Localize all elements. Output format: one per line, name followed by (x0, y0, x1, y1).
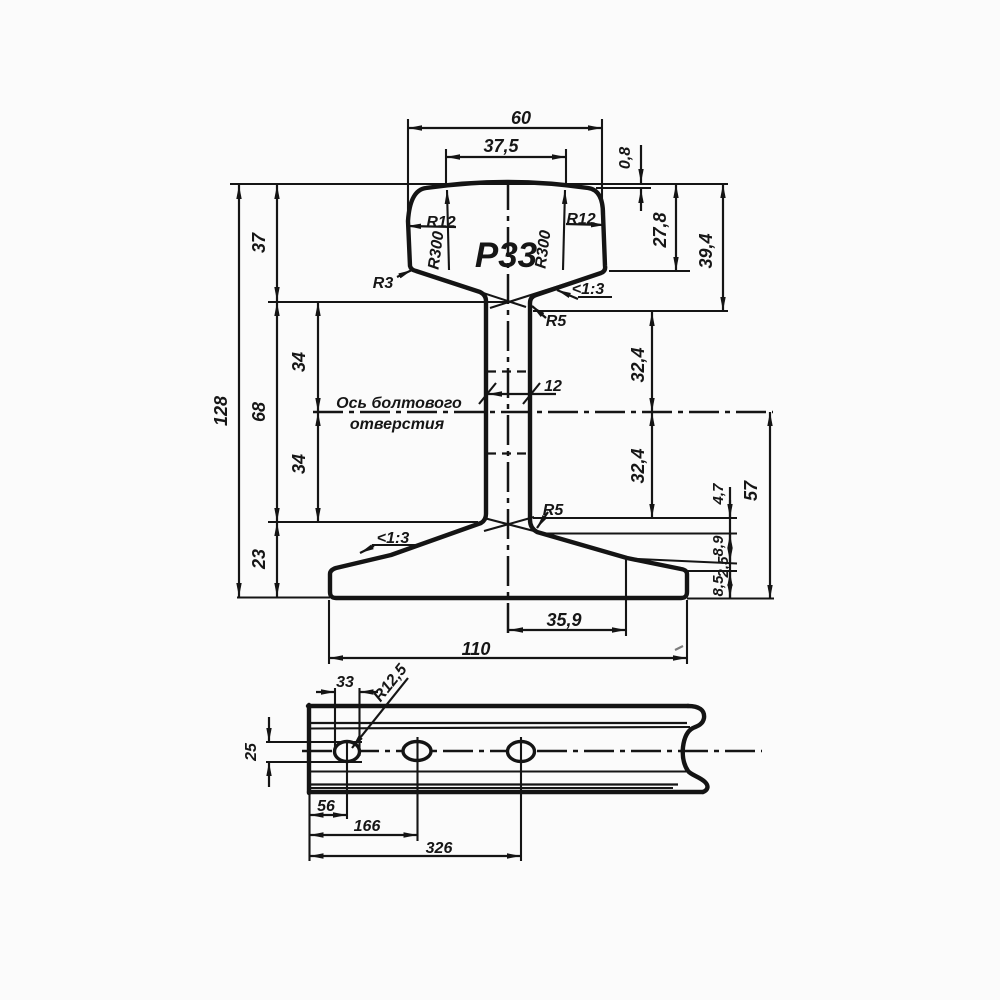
svg-text:37: 37 (249, 232, 269, 253)
svg-text:0,8: 0,8 (617, 147, 634, 169)
svg-text:23: 23 (249, 549, 269, 570)
svg-text:34: 34 (289, 454, 309, 474)
svg-text:34: 34 (289, 352, 309, 372)
svg-text:128: 128 (211, 396, 231, 426)
svg-text:<1:3: <1:3 (377, 530, 410, 547)
svg-text:57: 57 (741, 480, 761, 501)
svg-text:4,7: 4,7 (710, 483, 727, 506)
svg-text:35,9: 35,9 (546, 610, 581, 630)
svg-text:33: 33 (336, 674, 354, 691)
svg-text:110: 110 (462, 639, 491, 659)
svg-text:32,4: 32,4 (628, 448, 648, 483)
svg-text:R12: R12 (426, 214, 455, 231)
svg-text:Ось болтового: Ось болтового (336, 395, 462, 412)
svg-text:R5: R5 (546, 313, 568, 330)
svg-text:8,5: 8,5 (710, 575, 727, 597)
svg-text:R5: R5 (543, 502, 565, 519)
svg-text:39,4: 39,4 (696, 233, 716, 268)
svg-text:56: 56 (317, 798, 335, 815)
svg-text:32,4: 32,4 (628, 347, 648, 382)
svg-text:<1:3: <1:3 (572, 281, 605, 298)
svg-text:12: 12 (544, 378, 562, 395)
svg-text:отверстия: отверстия (350, 416, 445, 433)
svg-text:Р33: Р33 (475, 236, 538, 275)
svg-text:27,8: 27,8 (650, 212, 670, 248)
svg-text:2,5: 2,5 (715, 556, 732, 579)
svg-text:68: 68 (249, 402, 269, 422)
svg-text:R3: R3 (373, 275, 394, 292)
svg-text:60: 60 (511, 108, 531, 128)
svg-text:37,5: 37,5 (483, 136, 519, 156)
svg-text:326: 326 (426, 840, 453, 857)
svg-text:8,9: 8,9 (710, 535, 727, 557)
svg-text:R12: R12 (566, 211, 595, 228)
svg-text:25: 25 (243, 742, 260, 762)
svg-text:166: 166 (354, 818, 381, 835)
